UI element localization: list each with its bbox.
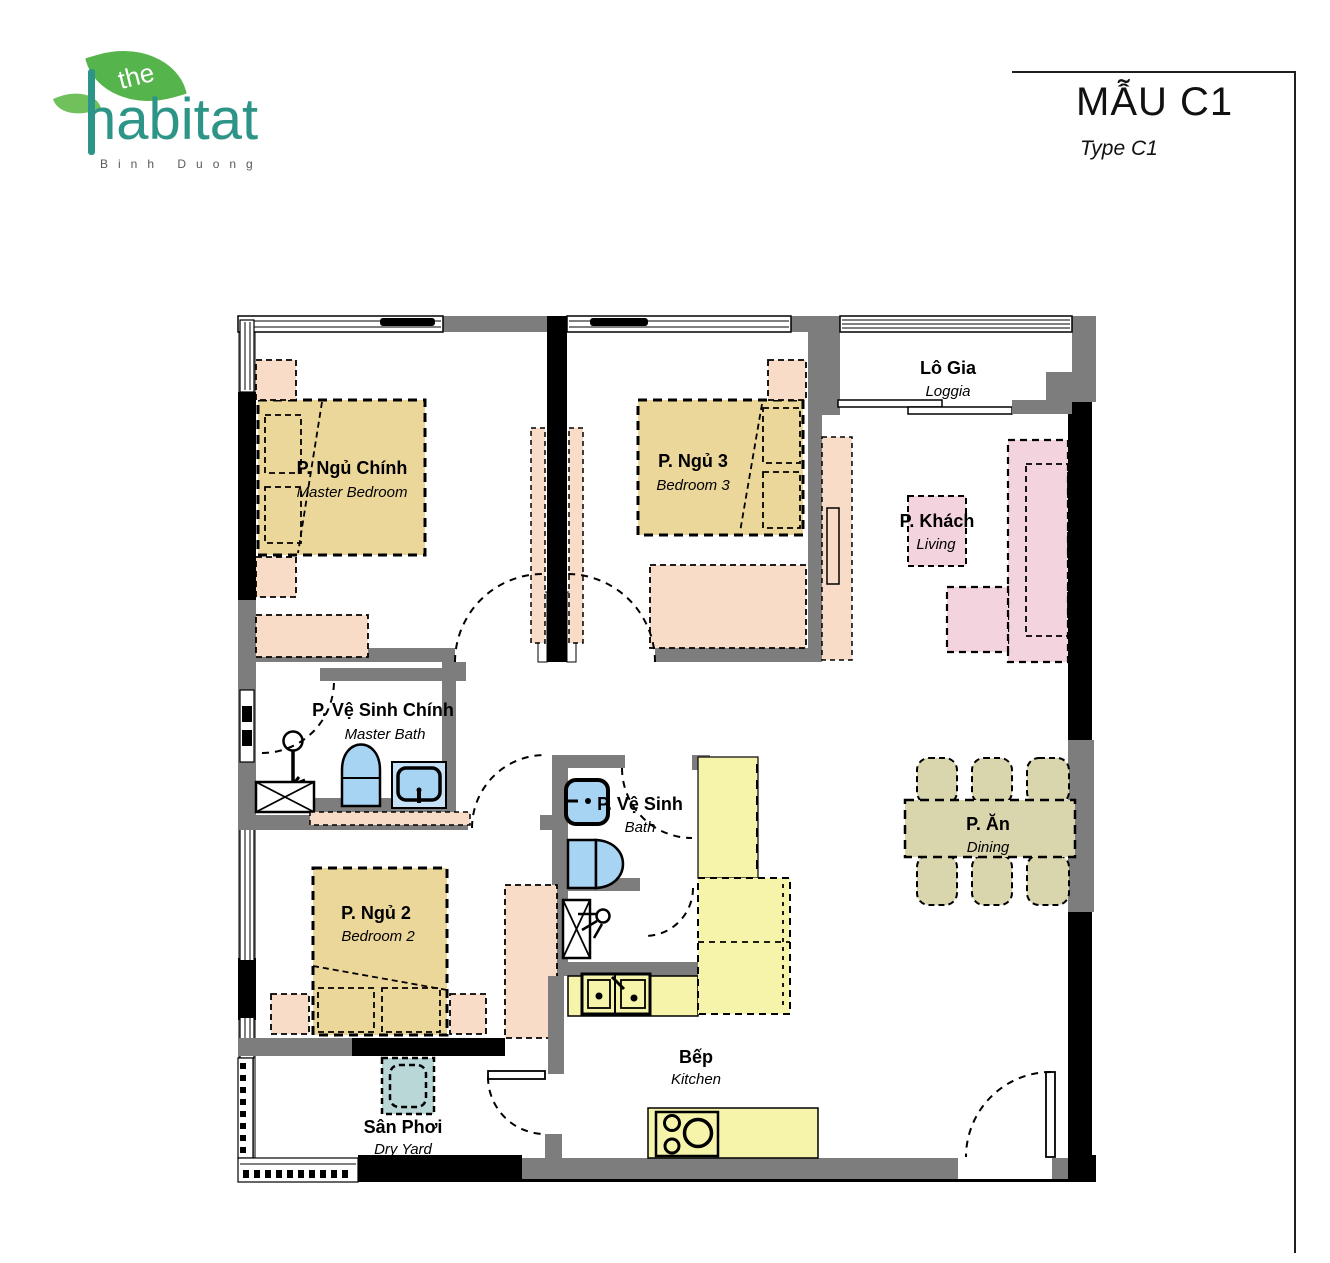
room-bedroom3 — [569, 360, 806, 648]
door-arc-shower — [645, 888, 693, 936]
nightstand — [271, 994, 309, 1034]
louver-dry-yard-left — [238, 1058, 253, 1158]
label-master-bath-vi: P. Vệ Sinh Chính — [312, 700, 454, 720]
label-loggia-en: Loggia — [925, 383, 970, 400]
wardrobe — [531, 428, 545, 643]
cabinet — [256, 360, 296, 400]
fridge-area — [698, 878, 790, 1014]
chair — [917, 855, 957, 905]
label-bath-en: Bath — [625, 819, 656, 836]
chair — [1027, 855, 1069, 905]
label-bedroom2-en: Bedroom 2 — [341, 928, 415, 945]
label-dry-yard-en: Dry Yard — [374, 1141, 432, 1158]
page: the habitat Binh Duong MẪU C1 Type C1 — [0, 0, 1330, 1263]
desk — [256, 615, 368, 657]
bed-bedroom2 — [313, 868, 447, 1035]
label-bedroom3-vi: P. Ngủ 3 — [658, 451, 728, 471]
sliding-door-loggia — [838, 400, 1072, 414]
label-kitchen-en: Kitchen — [671, 1071, 721, 1088]
door-arc-bedroom2 — [472, 755, 545, 828]
door-arc-dry-yard — [488, 1077, 545, 1134]
washing-machine-icon — [382, 1058, 434, 1114]
label-living-vi: P. Khách — [900, 511, 975, 531]
wardrobe-south — [650, 565, 806, 648]
wardrobe — [569, 428, 583, 643]
room-master-bedroom — [256, 360, 545, 657]
counter-column — [698, 757, 758, 878]
sofa-chaise — [947, 587, 1008, 652]
label-bath-vi: P. Vệ Sinh — [597, 794, 683, 814]
chair — [972, 758, 1012, 804]
label-master-bedroom-vi: P. Ngủ Chính — [297, 458, 408, 478]
door-arc-entrance — [966, 1072, 1051, 1157]
stove-icon — [656, 1112, 718, 1156]
room-dry-yard — [382, 1058, 434, 1114]
label-loggia-vi: Lô Gia — [920, 358, 977, 378]
window-master-bedroom-left — [240, 320, 254, 392]
wall-kitchen-dryyard — [548, 976, 564, 1074]
cabinet — [768, 360, 806, 400]
wall-dryyard-stub — [545, 1134, 562, 1162]
toilet-icon — [568, 840, 623, 888]
label-master-bedroom-en: Master Bedroom — [297, 484, 408, 501]
nightstand — [450, 994, 486, 1034]
bath-mat — [310, 812, 470, 825]
door-leaf-entrance — [1046, 1072, 1055, 1157]
toilet-icon — [342, 745, 380, 807]
label-bedroom3-en: Bedroom 3 — [656, 477, 730, 494]
window-bedroom2-left — [240, 820, 254, 1058]
kitchen-sink-icon — [582, 974, 650, 1014]
label-bedroom2-vi: P. Ngủ 2 — [341, 903, 411, 923]
chair — [917, 758, 957, 804]
window-master-bedroom-top — [238, 316, 443, 332]
louver-dry-yard-bottom — [238, 1158, 358, 1182]
floor-plan: P. Ngủ Chính Master Bedroom P. Ngủ 3 Bed… — [0, 0, 1330, 1263]
label-dry-yard-vi: Sân Phơi — [364, 1117, 443, 1137]
label-kitchen-vi: Bếp — [679, 1047, 713, 1067]
chair — [1027, 758, 1069, 804]
nightstand — [256, 557, 296, 597]
label-dining-vi: P. Ăn — [966, 813, 1010, 834]
window-loggia-top — [840, 316, 1072, 332]
label-living-en: Living — [916, 536, 956, 553]
label-dining-en: Dining — [967, 839, 1010, 856]
living-label-box — [908, 496, 966, 566]
label-master-bath-en: Master Bath — [345, 726, 426, 743]
shaft-box — [256, 782, 314, 812]
window-bedroom3-top — [567, 316, 791, 332]
door-arc-master-bedroom — [455, 574, 543, 662]
chair — [972, 855, 1012, 905]
window-master-bath-left — [240, 690, 254, 762]
sink-icon — [392, 762, 446, 808]
tv-icon — [827, 508, 839, 584]
room-bedroom2 — [271, 868, 557, 1038]
sofa — [1008, 440, 1068, 662]
door-leaf-dry-yard — [488, 1071, 545, 1079]
